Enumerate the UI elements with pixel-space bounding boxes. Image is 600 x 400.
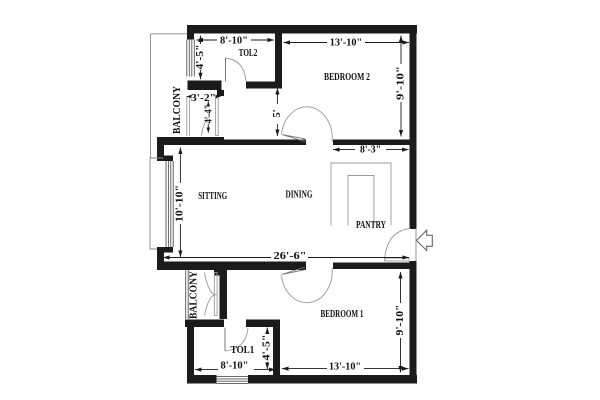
svg-text:8'-10": 8'-10" [220,34,248,46]
svg-text:4'-4": 4'-4" [204,105,215,124]
svg-text:9'-10": 9'-10" [394,305,406,336]
svg-text:9'-10": 9'-10" [395,66,407,100]
svg-text:TOL1: TOL1 [231,344,255,356]
svg-text:SITTING: SITTING [198,190,227,202]
svg-text:5': 5' [272,109,283,117]
svg-text:4'-5": 4'-5" [194,45,206,70]
svg-text:TOL2: TOL2 [239,47,258,59]
svg-text:8'-3": 8'-3" [360,143,381,155]
svg-text:4'-5": 4'-5" [261,335,273,361]
svg-text:BEDROOM 1: BEDROOM 1 [321,308,364,320]
svg-text:BALCONY: BALCONY [187,271,199,319]
svg-text:8'-10": 8'-10" [221,360,249,372]
svg-text:PANTRY: PANTRY [356,219,386,231]
svg-text:DINING: DINING [286,189,313,201]
svg-text:10'-10": 10'-10" [174,185,186,222]
svg-text:26'-6": 26'-6" [274,250,307,262]
svg-text:3'-2": 3'-2" [191,92,216,104]
svg-text:BEDROOM 2: BEDROOM 2 [324,71,370,83]
svg-text:13'-10": 13'-10" [330,37,363,49]
svg-text:13'-10": 13'-10" [329,361,361,373]
svg-text:BALCONY: BALCONY [171,86,183,134]
